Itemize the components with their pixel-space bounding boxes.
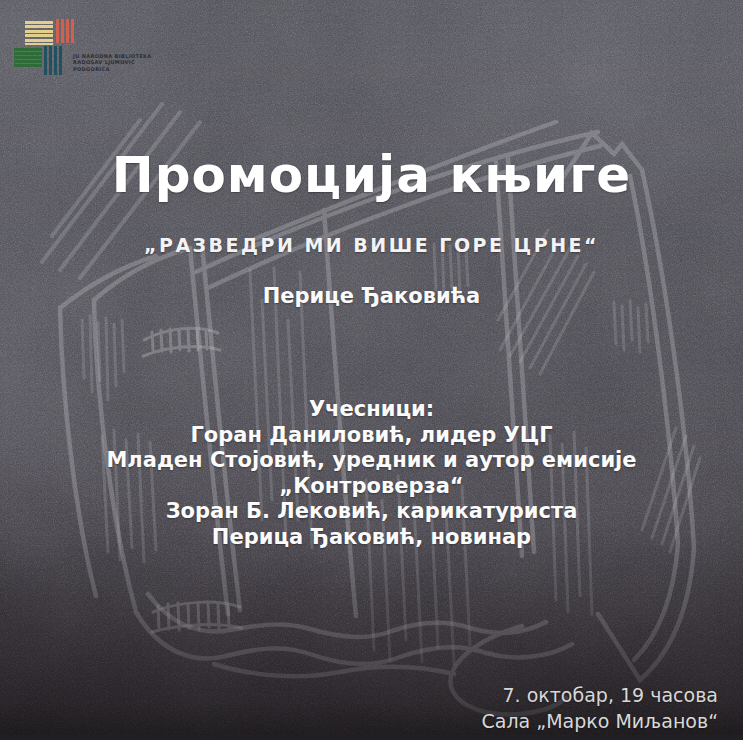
bottom-edge-strip — [0, 735, 743, 740]
book-title: „РАЗВЕДРИ МИ ВИШЕ ГОРЕ ЦРНЕ“ — [0, 234, 743, 256]
event-venue: Сала „Марко Миљанов“ — [482, 708, 718, 734]
logo-block-teal-icon — [44, 46, 64, 75]
poster-title: Промоција књиге — [0, 146, 743, 204]
participant-line: Перица Ђаковић, новинар — [0, 525, 743, 551]
library-logo: JU NARODNA BIBLIOTEKA RADOSAV LJUMOVIĆ P… — [0, 0, 220, 90]
participant-line: Младен Стојовић, уредник и аутор емисије — [0, 448, 743, 474]
logo-block-green-icon — [14, 48, 42, 68]
logo-block-red-icon — [56, 19, 75, 43]
participant-line: Горан Даниловић, лидер УЦГ — [0, 423, 743, 449]
event-datetime: 7. октобар, 19 часова — [482, 682, 718, 708]
participant-line: Зоран Б. Лековић, карикатуриста — [0, 499, 743, 525]
author-name: Перице Ђаковића — [0, 284, 743, 308]
library-name: JU NARODNA BIBLIOTEKA RADOSAV LJUMOVIĆ P… — [73, 53, 151, 72]
library-name-line3: PODGORICA — [73, 66, 151, 72]
participants-heading: Учесници: — [0, 397, 743, 423]
participants-list: Учесници: Горан Даниловић, лидер УЦГ Мла… — [0, 397, 743, 550]
chalk-books-illustration — [0, 0, 743, 740]
event-info: 7. октобар, 19 часова Сала „Марко Миљано… — [482, 682, 718, 734]
logo-block-yellow-icon — [25, 21, 53, 45]
event-poster: JU NARODNA BIBLIOTEKA RADOSAV LJUMOVIĆ P… — [0, 0, 743, 740]
participant-line: „Контроверза“ — [0, 474, 743, 500]
